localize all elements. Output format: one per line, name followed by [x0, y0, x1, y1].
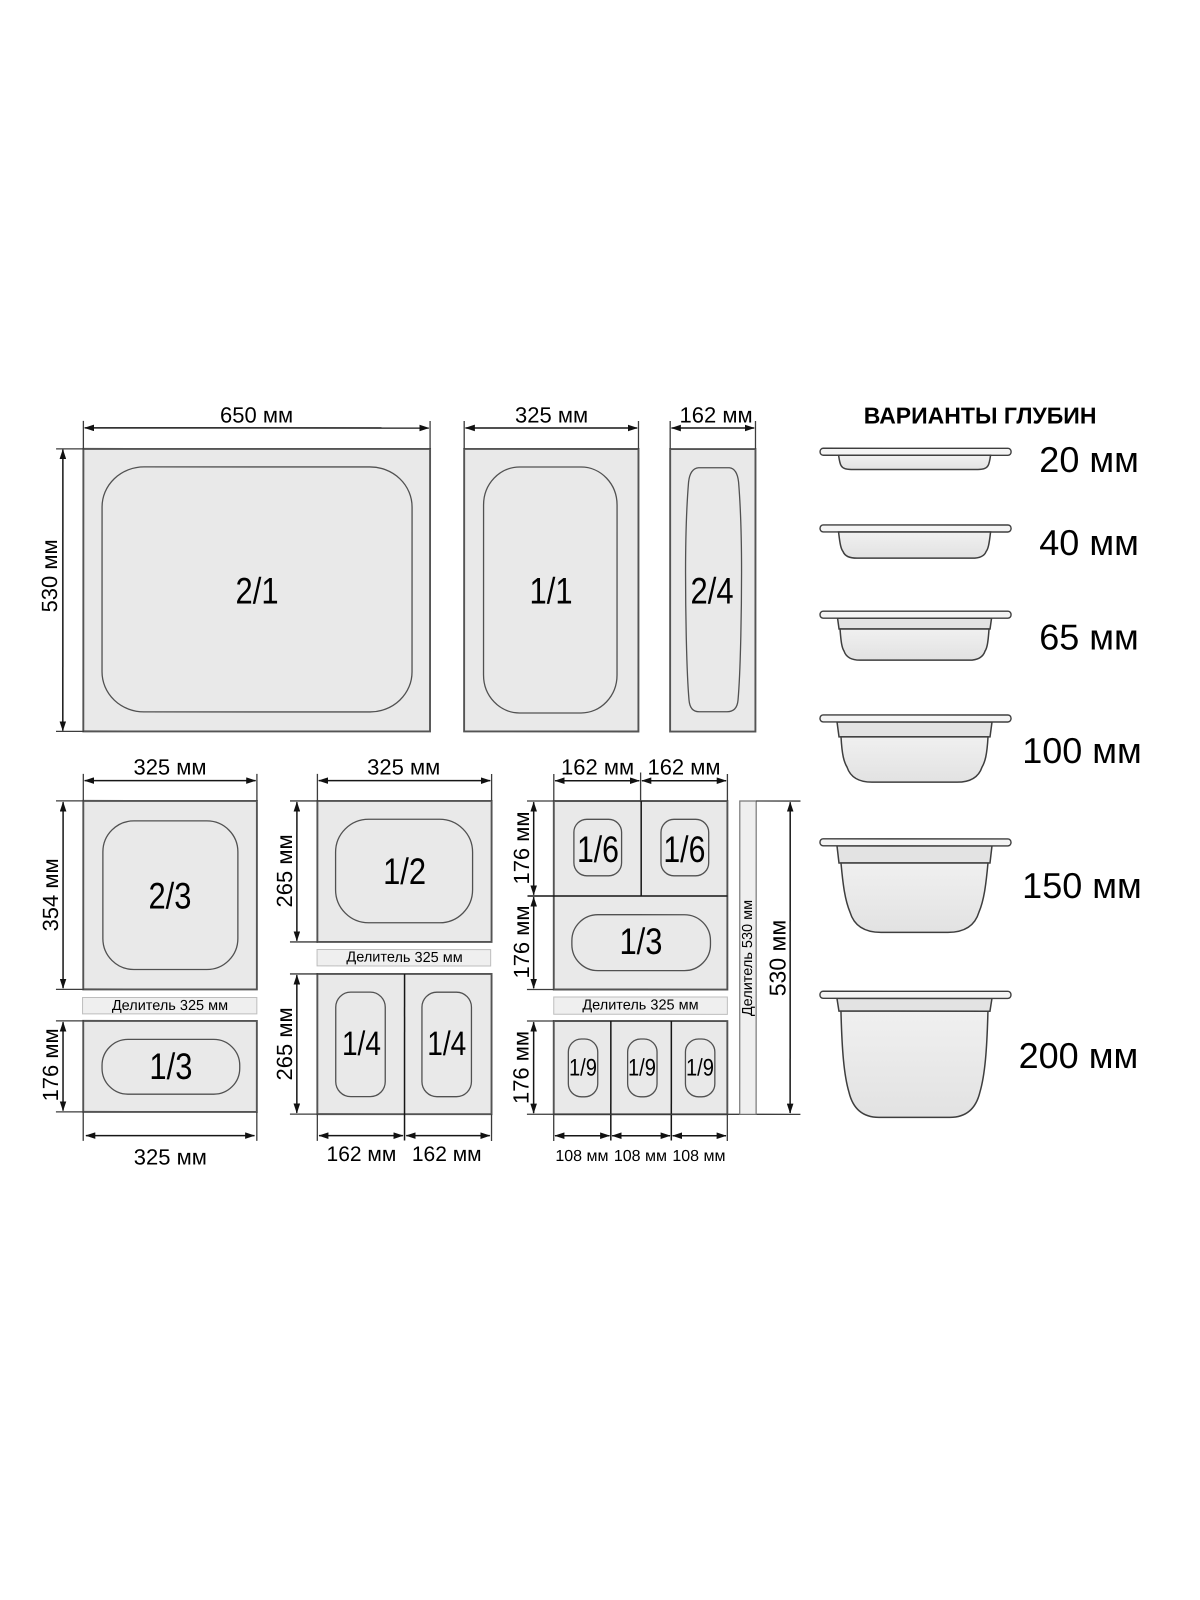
- svg-text:530 мм: 530 мм: [37, 539, 62, 612]
- svg-text:1/3: 1/3: [619, 921, 662, 962]
- svg-text:108 мм: 108 мм: [555, 1148, 608, 1165]
- svg-text:265 мм: 265 мм: [272, 1007, 297, 1080]
- svg-text:1/1: 1/1: [530, 570, 573, 611]
- svg-text:162 мм: 162 мм: [680, 403, 753, 428]
- svg-text:1/6: 1/6: [663, 829, 705, 870]
- svg-text:108 мм: 108 мм: [614, 1148, 667, 1165]
- svg-text:325 мм: 325 мм: [367, 754, 440, 779]
- svg-text:265 мм: 265 мм: [272, 834, 297, 907]
- svg-text:325 мм: 325 мм: [134, 1144, 207, 1169]
- svg-text:162 мм: 162 мм: [327, 1143, 397, 1166]
- svg-text:1/9: 1/9: [686, 1055, 714, 1082]
- svg-text:530 мм: 530 мм: [764, 920, 790, 996]
- svg-text:162 мм: 162 мм: [647, 755, 720, 780]
- svg-text:1/9: 1/9: [628, 1055, 656, 1082]
- svg-text:162 мм: 162 мм: [412, 1143, 482, 1166]
- svg-text:Делитель 325 мм: Делитель 325 мм: [112, 998, 228, 1014]
- svg-text:325 мм: 325 мм: [515, 402, 588, 427]
- svg-text:2/3: 2/3: [148, 875, 191, 916]
- svg-text:2/1: 2/1: [236, 570, 279, 611]
- svg-text:100 мм: 100 мм: [1022, 730, 1142, 771]
- svg-text:325 мм: 325 мм: [133, 754, 206, 779]
- svg-text:40 мм: 40 мм: [1039, 522, 1139, 563]
- svg-text:650 мм: 650 мм: [220, 402, 293, 427]
- svg-text:Делитель 325 мм: Делитель 325 мм: [346, 950, 462, 966]
- svg-text:200 мм: 200 мм: [1019, 1035, 1139, 1076]
- svg-text:1/4: 1/4: [342, 1025, 381, 1063]
- svg-text:150 мм: 150 мм: [1022, 865, 1142, 906]
- svg-text:1/3: 1/3: [149, 1046, 192, 1087]
- svg-text:1/4: 1/4: [427, 1025, 466, 1063]
- svg-text:1/6: 1/6: [577, 829, 619, 870]
- svg-text:1/2: 1/2: [383, 851, 426, 892]
- svg-text:176 мм: 176 мм: [38, 1028, 63, 1101]
- svg-text:ВАРИАНТЫ ГЛУБИН: ВАРИАНТЫ ГЛУБИН: [864, 403, 1097, 429]
- svg-text:Делитель 530 мм: Делитель 530 мм: [740, 900, 756, 1016]
- svg-text:108 мм: 108 мм: [672, 1148, 725, 1165]
- svg-text:20 мм: 20 мм: [1039, 439, 1139, 480]
- svg-text:176 мм: 176 мм: [509, 811, 534, 884]
- svg-text:354 мм: 354 мм: [38, 858, 63, 931]
- svg-text:1/9: 1/9: [569, 1054, 597, 1081]
- svg-text:176 мм: 176 мм: [509, 1031, 534, 1104]
- svg-text:2/4: 2/4: [691, 571, 734, 612]
- svg-text:162 мм: 162 мм: [561, 754, 634, 779]
- svg-text:Делитель 325 мм: Делитель 325 мм: [582, 998, 698, 1014]
- svg-text:65 мм: 65 мм: [1039, 617, 1139, 658]
- svg-text:176 мм: 176 мм: [509, 905, 534, 978]
